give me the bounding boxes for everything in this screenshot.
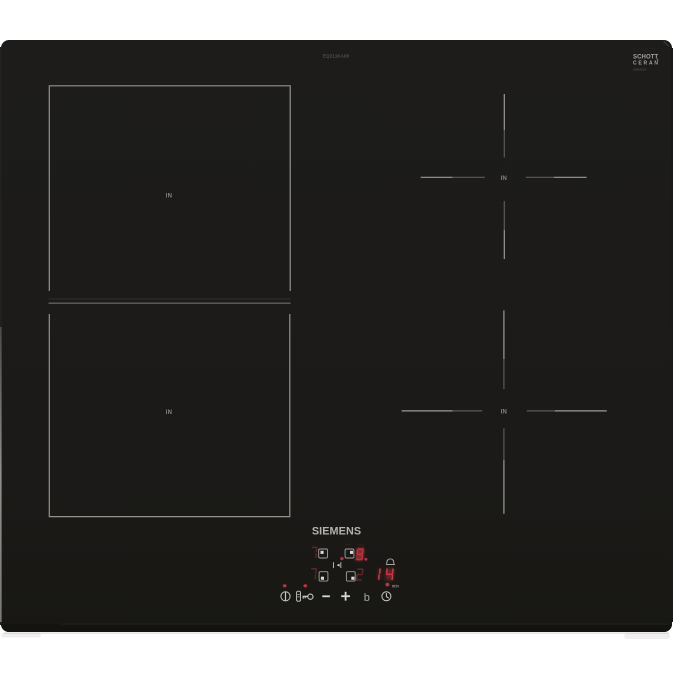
svg-text:EQ211KA00: EQ211KA00 [323, 53, 350, 58]
svg-text:IN: IN [501, 409, 507, 415]
svg-text:IN: IN [166, 193, 172, 199]
svg-text:b: b [364, 592, 370, 604]
svg-text:IN: IN [501, 176, 507, 182]
svg-text:SCHOTT: SCHOTT [633, 48, 656, 54]
svg-text:SIEMENS: SIEMENS [312, 525, 361, 537]
svg-text:min: min [392, 583, 400, 588]
svg-text:H05010023: H05010023 [633, 67, 647, 71]
svg-text:®: ® [657, 58, 659, 62]
svg-text:IN: IN [166, 410, 172, 416]
